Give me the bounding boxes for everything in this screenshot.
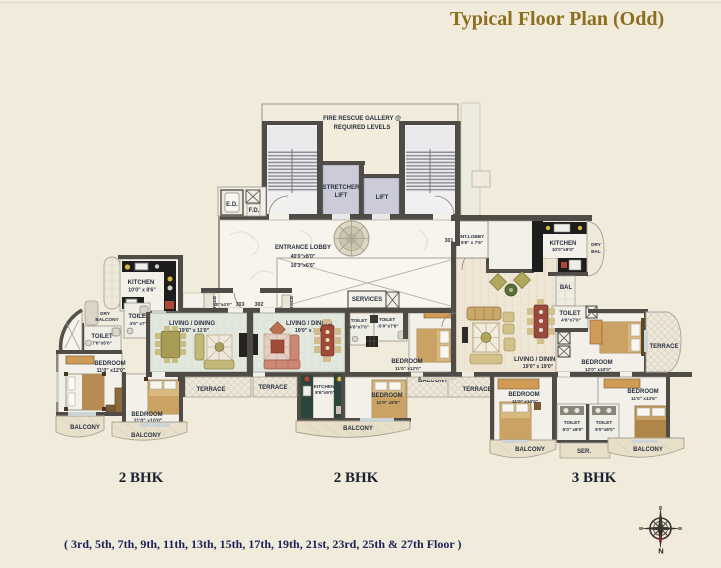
svg-text:302: 302 bbox=[255, 302, 264, 308]
svg-text:-5'0"x7'6": -5'0"x7'6" bbox=[377, 324, 398, 329]
svg-text:LIFT: LIFT bbox=[335, 193, 348, 199]
svg-text:( 3rd, 5th, 7th, 9th, 11th, 13: ( 3rd, 5th, 7th, 9th, 11th, 13th, 15th, … bbox=[64, 537, 461, 551]
svg-text:TOILET: TOILET bbox=[379, 317, 396, 322]
svg-text:TERRACE: TERRACE bbox=[649, 344, 678, 350]
svg-text:11'0" x9'0": 11'0" x9'0" bbox=[376, 400, 399, 405]
svg-text:303: 303 bbox=[236, 302, 245, 308]
svg-text:BALCONY: BALCONY bbox=[70, 425, 100, 431]
svg-text:KITCHEN: KITCHEN bbox=[314, 384, 335, 389]
svg-text:BALCONY: BALCONY bbox=[633, 447, 663, 453]
svg-text:LIVING / DINING: LIVING / DINING bbox=[514, 357, 560, 363]
svg-text:12'0" x10'0": 12'0" x10'0" bbox=[585, 367, 611, 372]
svg-text:TOILET: TOILET bbox=[564, 420, 581, 425]
svg-text:TOILET: TOILET bbox=[559, 311, 581, 317]
svg-text:TOILET: TOILET bbox=[351, 318, 368, 323]
svg-text:BEDROOM: BEDROOM bbox=[94, 361, 125, 367]
svg-text:BALCONY: BALCONY bbox=[95, 317, 119, 322]
svg-text:5'8" x 7'6": 5'8" x 7'6" bbox=[461, 240, 483, 245]
svg-text:ENT.LOBBY: ENT.LOBBY bbox=[458, 234, 485, 239]
svg-text:11'0" x13'0": 11'0" x13'0" bbox=[512, 399, 538, 404]
svg-text:3 BHK: 3 BHK bbox=[572, 470, 617, 486]
svg-text:KITCHEN: KITCHEN bbox=[128, 280, 155, 286]
svg-text:DRY: DRY bbox=[591, 242, 602, 247]
svg-text:E.D.: E.D. bbox=[226, 202, 238, 208]
svg-text:10'0"x9'0": 10'0"x9'0" bbox=[552, 247, 574, 252]
svg-text:BAL: BAL bbox=[560, 285, 573, 291]
svg-text:SER.: SER. bbox=[577, 449, 591, 455]
svg-text:REQUIRED LEVELS: REQUIRED LEVELS bbox=[334, 125, 391, 131]
svg-text:LIFT: LIFT bbox=[376, 195, 389, 201]
svg-text:BEDROOM: BEDROOM bbox=[627, 389, 658, 395]
svg-text:8'6"x9'0": 8'6"x9'0" bbox=[315, 390, 335, 395]
svg-text:F.D.: F.D. bbox=[249, 208, 260, 214]
svg-text:10'0" x 8'6": 10'0" x 8'6" bbox=[128, 288, 156, 294]
svg-text:N: N bbox=[658, 547, 663, 556]
svg-text:11'0" x13'6": 11'0" x13'6" bbox=[631, 396, 657, 401]
svg-text:19'0" x 19'0": 19'0" x 19'0" bbox=[523, 364, 554, 370]
svg-text:7'6"x5'0": 7'6"x5'0" bbox=[92, 341, 112, 346]
svg-text:11'0" x12'0": 11'0" x12'0" bbox=[97, 368, 126, 374]
svg-text:BEDROOM: BEDROOM bbox=[131, 412, 162, 418]
svg-text:11'0" x12'0": 11'0" x12'0" bbox=[395, 366, 421, 371]
svg-text:TOILET: TOILET bbox=[91, 334, 113, 340]
svg-text:Typical Floor Plan (Odd): Typical Floor Plan (Odd) bbox=[450, 8, 664, 30]
svg-text:TERRACE: TERRACE bbox=[196, 387, 225, 393]
svg-text:SERVICES: SERVICES bbox=[352, 297, 382, 303]
svg-text:BEDROOM: BEDROOM bbox=[508, 392, 539, 398]
svg-text:2 BHK: 2 BHK bbox=[334, 470, 379, 486]
svg-text:STRETCHER: STRETCHER bbox=[323, 185, 360, 191]
svg-text:ENTRANCE LOBBY: ENTRANCE LOBBY bbox=[275, 245, 331, 251]
svg-text:TERRACE: TERRACE bbox=[462, 387, 491, 393]
svg-text:TERRACE: TERRACE bbox=[258, 385, 287, 391]
svg-text:DRY: DRY bbox=[100, 311, 111, 316]
svg-text:BEDROOM: BEDROOM bbox=[391, 359, 422, 365]
svg-text:5'0" x8'0": 5'0" x8'0" bbox=[562, 427, 583, 432]
svg-text:BALCONY: BALCONY bbox=[131, 433, 161, 439]
svg-text:BEDROOM: BEDROOM bbox=[581, 360, 612, 366]
svg-text:BAL: BAL bbox=[591, 249, 601, 254]
svg-text:FIRE RESCUE GALLERY @: FIRE RESCUE GALLERY @ bbox=[323, 116, 401, 122]
svg-text:BALCONY: BALCONY bbox=[343, 426, 373, 432]
svg-text:BEDROOM: BEDROOM bbox=[371, 393, 402, 399]
svg-text:2 BHK: 2 BHK bbox=[119, 470, 164, 486]
svg-text:4'6"x7'0": 4'6"x7'0" bbox=[349, 325, 369, 330]
svg-text:4'6"x7'0": 4'6"x7'0" bbox=[561, 318, 581, 323]
svg-text:10'3"x6'6": 10'3"x6'6" bbox=[291, 263, 316, 269]
svg-text:TOILET: TOILET bbox=[596, 420, 613, 425]
svg-text:BALCONY: BALCONY bbox=[515, 447, 545, 453]
svg-text:5'0"x8'0": 5'0"x8'0" bbox=[595, 427, 615, 432]
svg-text:40'0"x8'0": 40'0"x8'0" bbox=[291, 254, 316, 260]
